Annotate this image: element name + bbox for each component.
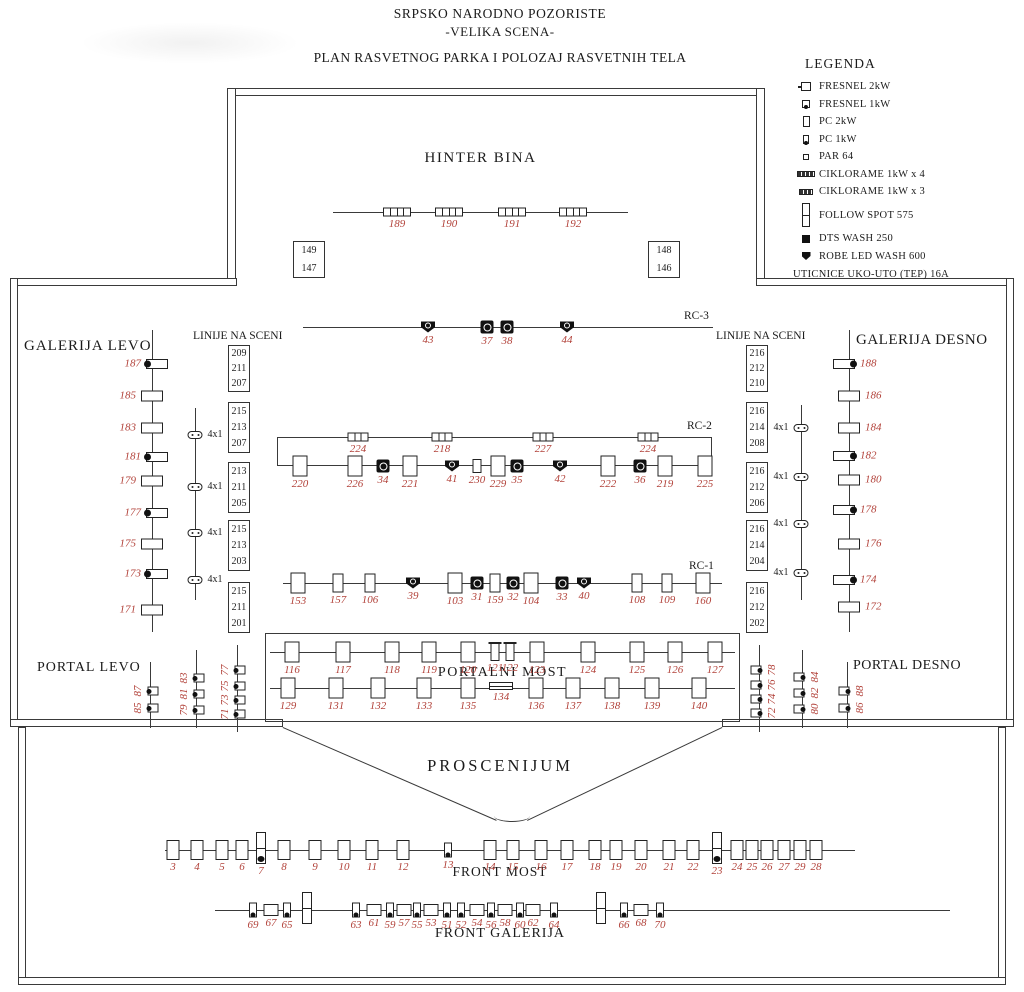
wall-hinter-top bbox=[227, 88, 765, 96]
fixture-number: 4x1 bbox=[774, 567, 789, 578]
fixture-number: 69 bbox=[248, 919, 259, 931]
patch-box: 216214204 bbox=[746, 520, 768, 571]
fixture-number: 24 bbox=[732, 861, 743, 873]
fixture-218-icon bbox=[432, 433, 453, 442]
fixture-73-icon bbox=[235, 696, 246, 705]
wall-shoulder-left bbox=[10, 278, 237, 286]
fixture-number: 26 bbox=[762, 861, 773, 873]
fixture-number: 33 bbox=[557, 591, 568, 603]
fixture-17-icon bbox=[561, 840, 574, 860]
fixture-227-icon bbox=[533, 433, 554, 442]
fixture-number: 184 bbox=[865, 421, 882, 433]
fixture-number: 4x1 bbox=[208, 481, 223, 492]
fixture-number: 76 bbox=[766, 680, 778, 691]
fixture-number: 177 bbox=[125, 506, 142, 518]
fixture-number: 5 bbox=[219, 861, 225, 873]
fixture-number: 11 bbox=[367, 861, 377, 873]
fixture-number: 219 bbox=[657, 478, 674, 490]
fixture-61-icon bbox=[367, 904, 382, 916]
circuit-number: 204 bbox=[750, 556, 765, 567]
fixture-number: 176 bbox=[865, 537, 882, 549]
fixture-number: 39 bbox=[408, 590, 419, 602]
fixture-42-icon bbox=[553, 461, 567, 472]
legend-icon-cell bbox=[793, 154, 819, 160]
fixture-number: 64 bbox=[549, 919, 560, 931]
fixture-number: 82 bbox=[809, 688, 821, 699]
patch-box: 215211201 bbox=[228, 582, 250, 633]
fixture-number: 55 bbox=[412, 919, 423, 931]
circuit-number: 207 bbox=[232, 438, 247, 449]
fixture-number: 68 bbox=[636, 917, 647, 929]
fixture-41-icon bbox=[445, 461, 459, 472]
fixture-number: 226 bbox=[347, 478, 364, 490]
fixture-104-icon bbox=[524, 573, 539, 594]
fixture-number: 136 bbox=[528, 700, 545, 712]
fixture-number: 137 bbox=[565, 700, 582, 712]
fixture-139-icon bbox=[645, 678, 660, 699]
wall-auditorium-right bbox=[998, 727, 1006, 985]
fixture-number: 122 bbox=[502, 662, 519, 674]
fixture-122-icon bbox=[506, 643, 515, 661]
legend-icon-cell bbox=[793, 203, 819, 227]
fixture-129-icon bbox=[281, 678, 296, 699]
rc1-label: RC-1 bbox=[689, 560, 714, 572]
proscenijum-label: PROSCENIJUM bbox=[330, 756, 670, 776]
fixture-23-icon bbox=[712, 832, 722, 864]
fixture-72-icon bbox=[751, 709, 762, 718]
fixture-9-icon bbox=[309, 840, 322, 860]
fixture-number: 116 bbox=[284, 664, 300, 676]
fixture-number: 58 bbox=[500, 917, 511, 929]
fixture-number: 140 bbox=[691, 700, 708, 712]
fixture-66-icon bbox=[620, 903, 628, 918]
fixture-40-icon bbox=[577, 578, 591, 589]
legend-item: PC 2kW bbox=[793, 114, 1023, 129]
fixture-182-icon bbox=[833, 451, 855, 461]
fixture-number: 180 bbox=[865, 473, 882, 485]
fixture-127-icon bbox=[708, 642, 723, 663]
legend-item: FRESNEL 2kW bbox=[793, 79, 1023, 94]
legend-item-label: ROBE LED WASH 600 bbox=[819, 251, 926, 262]
fixture-number: 53 bbox=[426, 917, 437, 929]
fixture-number: 72 bbox=[766, 708, 778, 719]
fixture-number: 83 bbox=[178, 673, 190, 684]
wall-auditorium-bottom bbox=[18, 977, 1006, 985]
fixture-120-icon bbox=[461, 642, 476, 663]
fixture-7-icon bbox=[256, 832, 266, 864]
fixture-number: 129 bbox=[280, 700, 297, 712]
fixture-184-icon bbox=[838, 423, 860, 434]
fixture-number: 103 bbox=[447, 595, 464, 607]
fixture-160-icon bbox=[696, 573, 711, 594]
legend-title: LEGENDA bbox=[805, 56, 1023, 72]
fixture-57-icon bbox=[397, 904, 412, 916]
fixture-189-icon bbox=[383, 208, 411, 217]
fixture-4x1-icon bbox=[794, 520, 809, 528]
fixture-121-icon bbox=[491, 643, 500, 661]
fixture-number: 160 bbox=[695, 595, 712, 607]
fixture-number: 8 bbox=[281, 861, 287, 873]
fixture-32-icon bbox=[507, 577, 520, 590]
fixture-8-icon bbox=[278, 840, 291, 860]
par64-icon bbox=[803, 154, 809, 160]
legend-item-label: CIKLORAME 1kW x 4 bbox=[819, 169, 925, 180]
fixture-82-icon bbox=[794, 689, 805, 698]
fixture-number: 56 bbox=[486, 919, 497, 931]
fixture-134-icon bbox=[489, 682, 513, 690]
fixture-136-icon bbox=[529, 678, 544, 699]
fixture-138-icon bbox=[605, 678, 620, 699]
legend-item-label: PC 1kW bbox=[819, 134, 857, 145]
fixture-180-icon bbox=[838, 475, 860, 486]
fixture-106-icon bbox=[365, 574, 376, 593]
fixture-number: 63 bbox=[351, 919, 362, 931]
fixture-44-icon bbox=[560, 322, 574, 333]
fixture-number: 74 bbox=[766, 694, 778, 705]
fixture-number: 173 bbox=[125, 567, 142, 579]
fixture-number: 19 bbox=[611, 861, 622, 873]
circuit-number: 203 bbox=[232, 556, 247, 567]
legend-icon-cell bbox=[793, 100, 819, 108]
fixture-176-icon bbox=[838, 539, 860, 550]
fixture-number: 38 bbox=[502, 335, 513, 347]
fixture-58-icon bbox=[498, 904, 513, 916]
fixture-number: 65 bbox=[282, 919, 293, 931]
fixture-number: 70 bbox=[655, 919, 666, 931]
circuit-number: 213 bbox=[232, 466, 247, 477]
circuit-number: 215 bbox=[232, 406, 247, 417]
fixture-109-icon bbox=[662, 574, 673, 593]
linije-na-sceni-levo-label: LINIJE NA SCENI bbox=[193, 330, 282, 342]
fixture-number: 4 bbox=[194, 861, 200, 873]
fixture-191-icon bbox=[498, 208, 526, 217]
front-galerija-rail bbox=[215, 910, 950, 911]
fixture-number: 7 bbox=[258, 865, 264, 877]
fixture-number: 41 bbox=[447, 473, 458, 485]
fixture-177-icon bbox=[146, 508, 168, 518]
fixture-number: 27 bbox=[779, 861, 790, 873]
fixture-number: 123 bbox=[529, 664, 546, 676]
circuit-number: 147 bbox=[302, 263, 317, 274]
fixture-71-icon bbox=[235, 710, 246, 719]
fixture-43-icon bbox=[421, 322, 435, 333]
fixture-4x1-icon bbox=[188, 529, 203, 537]
fixture-78-icon bbox=[751, 666, 762, 675]
fixture-153-icon bbox=[291, 573, 306, 594]
patch-box: 216212210 bbox=[746, 345, 768, 392]
fixture-36-icon bbox=[634, 460, 647, 473]
wall-auditorium-left bbox=[18, 727, 26, 985]
circuit-number: 213 bbox=[232, 540, 247, 551]
fixture-192-icon bbox=[559, 208, 587, 217]
fixture-number: 124 bbox=[580, 664, 597, 676]
fixture-4x1-icon bbox=[794, 473, 809, 481]
fixture-number: 75 bbox=[219, 681, 231, 692]
fixture-67-icon bbox=[264, 904, 279, 916]
fixture-number: 153 bbox=[290, 595, 307, 607]
document-plan-title: PLAN RASVETNOG PARKA I POLOZAJ RASVETNIH… bbox=[280, 50, 720, 66]
fixture-number: 125 bbox=[629, 664, 646, 676]
circuit-number: 216 bbox=[750, 348, 765, 359]
fixture-number: 43 bbox=[423, 334, 434, 346]
fixture-3-icon bbox=[167, 840, 180, 860]
fixture-number: 37 bbox=[482, 335, 493, 347]
fixture-37-icon bbox=[481, 321, 494, 334]
fixture-179-icon bbox=[141, 476, 163, 487]
fixture-178-icon bbox=[833, 505, 855, 515]
fixture-number: 138 bbox=[604, 700, 621, 712]
fixture-number: 29 bbox=[795, 861, 806, 873]
legend-item-label: FOLLOW SPOT 575 bbox=[819, 210, 914, 221]
fixture-224-icon bbox=[638, 433, 659, 442]
fixture-34-icon bbox=[377, 460, 390, 473]
fixture-number: 4x1 bbox=[208, 574, 223, 585]
fixture-174-icon bbox=[833, 575, 855, 585]
fixture-number: 66 bbox=[619, 919, 630, 931]
fixture-number: 81 bbox=[178, 689, 190, 700]
fixture-number: 42 bbox=[555, 473, 566, 485]
fixture-number: 182 bbox=[860, 449, 877, 461]
robe-icon bbox=[802, 252, 811, 260]
fixture-19-icon bbox=[610, 840, 623, 860]
circuit-number: 211 bbox=[232, 363, 247, 374]
document-title: SRPSKO NARODNO POZORISTE bbox=[280, 6, 720, 22]
legend-item: FRESNEL 1kW bbox=[793, 97, 1023, 112]
fixture-81-icon bbox=[194, 690, 205, 699]
fixture-number: 189 bbox=[389, 218, 406, 230]
fixture-38-icon bbox=[501, 321, 514, 334]
fixture-number: 3 bbox=[170, 861, 176, 873]
patch-box: 216214208 bbox=[746, 402, 768, 453]
fixture-number: 178 bbox=[860, 503, 877, 515]
fixture-190-icon bbox=[435, 208, 463, 217]
legend-item: PC 1kW bbox=[793, 132, 1023, 147]
fixture-74-icon bbox=[751, 695, 762, 704]
fixture-83-icon bbox=[194, 674, 205, 683]
legend-items: FRESNEL 2kWFRESNEL 1kWPC 2kWPC 1kWPAR 64… bbox=[793, 79, 1023, 264]
linije-na-sceni-desno-label: LINIJE NA SCENI bbox=[716, 330, 805, 342]
fixture-number: 16 bbox=[536, 861, 547, 873]
fixture-103-icon bbox=[448, 573, 463, 594]
fixture-number: 131 bbox=[328, 700, 345, 712]
portal-levo-label: PORTAL LEVO bbox=[37, 660, 141, 676]
fixture-181-icon bbox=[146, 452, 168, 462]
fixture-number: 67 bbox=[266, 917, 277, 929]
fixture-number: 159 bbox=[487, 594, 504, 606]
fixture-26-icon bbox=[761, 840, 774, 860]
fixture-186-icon bbox=[838, 391, 860, 402]
fixture-number: 78 bbox=[766, 665, 778, 676]
fixture-51-icon bbox=[443, 903, 451, 918]
fixture-4x1-icon bbox=[188, 431, 203, 439]
fixture-59-icon bbox=[386, 903, 394, 918]
fixture-157-icon bbox=[333, 574, 344, 593]
legend-icon-cell bbox=[793, 135, 819, 144]
fixture-16-icon bbox=[535, 840, 548, 860]
fixture-75-icon bbox=[235, 682, 246, 691]
fixture-224-icon bbox=[348, 433, 369, 442]
rc2-label: RC-2 bbox=[687, 420, 712, 432]
fixture-77-icon bbox=[235, 666, 246, 675]
fixture-number: 132 bbox=[370, 700, 387, 712]
ciklo4-icon bbox=[797, 171, 815, 177]
fixture-number: 59 bbox=[385, 919, 396, 931]
fixture-63-icon bbox=[352, 903, 360, 918]
fixture-118-icon bbox=[385, 642, 400, 663]
fixture-230-icon bbox=[473, 459, 482, 473]
fixture-number: 186 bbox=[865, 389, 882, 401]
fixture-4x1-icon bbox=[794, 569, 809, 577]
portal-desno-label: PORTAL DESNO bbox=[853, 658, 961, 674]
legend-item: CIKLORAME 1kW x 4 bbox=[793, 167, 1023, 182]
legend-item-label: FRESNEL 1kW bbox=[819, 99, 890, 110]
fixture-number: 9 bbox=[312, 861, 318, 873]
legend-footer: UTICNICE UKO-UTO (TEP) 16A bbox=[793, 269, 1023, 280]
fixture-number: 157 bbox=[330, 594, 347, 606]
fixture-70-icon bbox=[656, 903, 664, 918]
fixture-64-icon bbox=[550, 903, 558, 918]
fixture-12-icon bbox=[397, 840, 410, 860]
fixture-number: 34 bbox=[378, 474, 389, 486]
fixture-62-icon bbox=[526, 904, 541, 916]
fixture-number: 181 bbox=[125, 450, 142, 462]
fixture-4x1-icon bbox=[188, 483, 203, 491]
fixture-number: 73 bbox=[219, 695, 231, 706]
fixture-number: 31 bbox=[472, 591, 483, 603]
fixture-number: 135 bbox=[460, 700, 477, 712]
fixture-number: 4x1 bbox=[774, 471, 789, 482]
fixture-number: 191 bbox=[504, 218, 521, 230]
fixture-88-icon bbox=[839, 687, 850, 696]
fixture-number: 108 bbox=[629, 594, 646, 606]
fixture-number: 117 bbox=[335, 664, 351, 676]
fixture-11-icon bbox=[366, 840, 379, 860]
fixture-number: 190 bbox=[441, 218, 458, 230]
fixture-number: 84 bbox=[809, 672, 821, 683]
legend-icon-cell bbox=[793, 235, 819, 243]
wall-hinter-left bbox=[227, 88, 236, 285]
fixture-number: 119 bbox=[421, 664, 437, 676]
fixture-number: 80 bbox=[809, 704, 821, 715]
fixture-20-icon bbox=[635, 840, 648, 860]
fixture-fs-icon bbox=[302, 892, 312, 924]
fixture-175-icon bbox=[141, 539, 163, 550]
fixture-number: 21 bbox=[664, 861, 675, 873]
fixture-number: 4x1 bbox=[774, 422, 789, 433]
fixture-68-icon bbox=[634, 904, 649, 916]
fixture-number: 86 bbox=[854, 703, 866, 714]
fixture-number: 40 bbox=[579, 590, 590, 602]
fixture-number: 14 bbox=[485, 861, 496, 873]
fixture-number: 71 bbox=[219, 709, 231, 720]
circuit-number: 210 bbox=[750, 378, 765, 389]
wall-stagefront-left bbox=[10, 719, 283, 727]
fixture-60-icon bbox=[516, 903, 524, 918]
fixture-140-icon bbox=[692, 678, 707, 699]
fixture-number: 15 bbox=[508, 861, 519, 873]
fixture-159-icon bbox=[490, 574, 501, 593]
fixture-21-icon bbox=[663, 840, 676, 860]
circuit-number: 207 bbox=[232, 378, 247, 389]
fixture-117-icon bbox=[336, 642, 351, 663]
fixture-number: 171 bbox=[120, 603, 137, 615]
galerija-desno-label: GALERIJA DESNO bbox=[856, 332, 988, 349]
fixture-5-icon bbox=[216, 840, 229, 860]
fixture-number: 12 bbox=[398, 861, 409, 873]
fixture-number: 172 bbox=[865, 600, 882, 612]
fixture-number: 61 bbox=[369, 917, 380, 929]
fixture-number: 54 bbox=[472, 917, 483, 929]
proscenium-edge-center bbox=[494, 810, 530, 822]
fixture-number: 57 bbox=[399, 917, 410, 929]
fixture-133-icon bbox=[417, 678, 432, 699]
fixture-number: 87 bbox=[132, 686, 144, 697]
fixture-number: 60 bbox=[515, 919, 526, 931]
fixture-4-icon bbox=[191, 840, 204, 860]
circuit-number: 211 bbox=[232, 482, 247, 493]
fixture-number: 4x1 bbox=[208, 527, 223, 538]
patch-box: 215213207 bbox=[228, 402, 250, 453]
legend-item-label: CIKLORAME 1kW x 3 bbox=[819, 186, 925, 197]
fixture-185-icon bbox=[141, 391, 163, 402]
circuit-number: 215 bbox=[232, 586, 247, 597]
fixture-number: 17 bbox=[562, 861, 573, 873]
fixture-187-icon bbox=[146, 359, 168, 369]
patch-box: 213211205 bbox=[228, 462, 250, 513]
fixture-53-icon bbox=[424, 904, 439, 916]
circuit-number: 215 bbox=[232, 524, 247, 535]
fixture-171-icon bbox=[141, 605, 163, 616]
fixture-number: 6 bbox=[239, 861, 245, 873]
fixture-65-icon bbox=[283, 903, 291, 918]
circuit-number: 211 bbox=[232, 602, 247, 613]
fixture-119-icon bbox=[422, 642, 437, 663]
wall-stage-right bbox=[1006, 278, 1014, 727]
fixture-76-icon bbox=[751, 681, 762, 690]
circuit-number: 149 bbox=[302, 245, 317, 256]
fixture-14-icon bbox=[484, 840, 497, 860]
pc2-icon bbox=[803, 116, 810, 127]
patch-box: 149147 bbox=[293, 241, 325, 278]
rc3-label: RC-3 bbox=[684, 310, 709, 322]
fixture-number: 36 bbox=[635, 474, 646, 486]
fixture-number: 10 bbox=[339, 861, 350, 873]
fixture-86-icon bbox=[839, 704, 850, 713]
fixture-131-icon bbox=[329, 678, 344, 699]
document-subtitle: -VELIKA SCENA- bbox=[280, 24, 720, 40]
fixture-222-icon bbox=[601, 456, 616, 477]
circuit-number: 201 bbox=[232, 618, 247, 629]
fixture-173-icon bbox=[146, 569, 168, 579]
circuit-number: 216 bbox=[750, 466, 765, 477]
legend-item: FOLLOW SPOT 575 bbox=[793, 202, 1023, 229]
fixture-28-icon bbox=[810, 840, 823, 860]
fixture-25-icon bbox=[746, 840, 759, 860]
legend-icon-cell bbox=[793, 171, 819, 177]
legend-item-label: DTS WASH 250 bbox=[819, 233, 893, 244]
fixture-79-icon bbox=[194, 706, 205, 715]
fixture-84-icon bbox=[794, 673, 805, 682]
fixture-number: 188 bbox=[860, 357, 877, 369]
hinter-bina-label: HINTER BINA bbox=[333, 150, 628, 167]
scan-smudge bbox=[80, 22, 300, 64]
fixture-number: 225 bbox=[697, 478, 714, 490]
fixture-number: 79 bbox=[178, 705, 190, 716]
fixture-226-icon bbox=[348, 456, 363, 477]
circuit-number: 212 bbox=[750, 363, 765, 374]
fixture-number: 230 bbox=[469, 474, 486, 486]
fixture-number: 35 bbox=[512, 474, 523, 486]
